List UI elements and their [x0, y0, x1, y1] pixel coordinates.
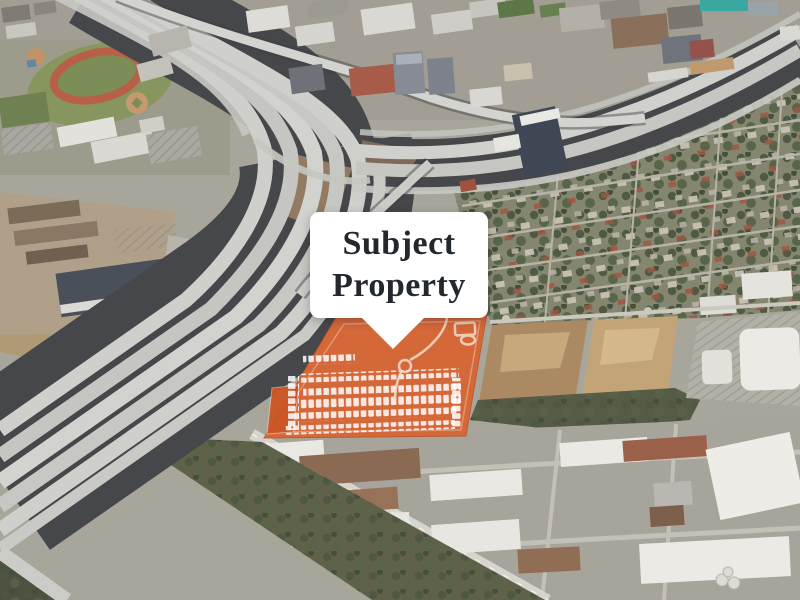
big-box-retail-site [686, 312, 800, 406]
office-tower [427, 57, 455, 95]
warehouse [639, 536, 791, 584]
subject-property-callout: Subject Property [310, 212, 488, 318]
parking-garage [288, 64, 325, 94]
brick-building [349, 63, 402, 96]
retail-building [739, 327, 800, 391]
teal-roof-building [700, 0, 748, 11]
aerial-map-exhibit: Subject Property [0, 0, 800, 600]
callout-pointer-tail [361, 317, 425, 349]
callout-label-line1: Subject [342, 223, 455, 265]
callout-label-line2: Property [332, 265, 466, 307]
